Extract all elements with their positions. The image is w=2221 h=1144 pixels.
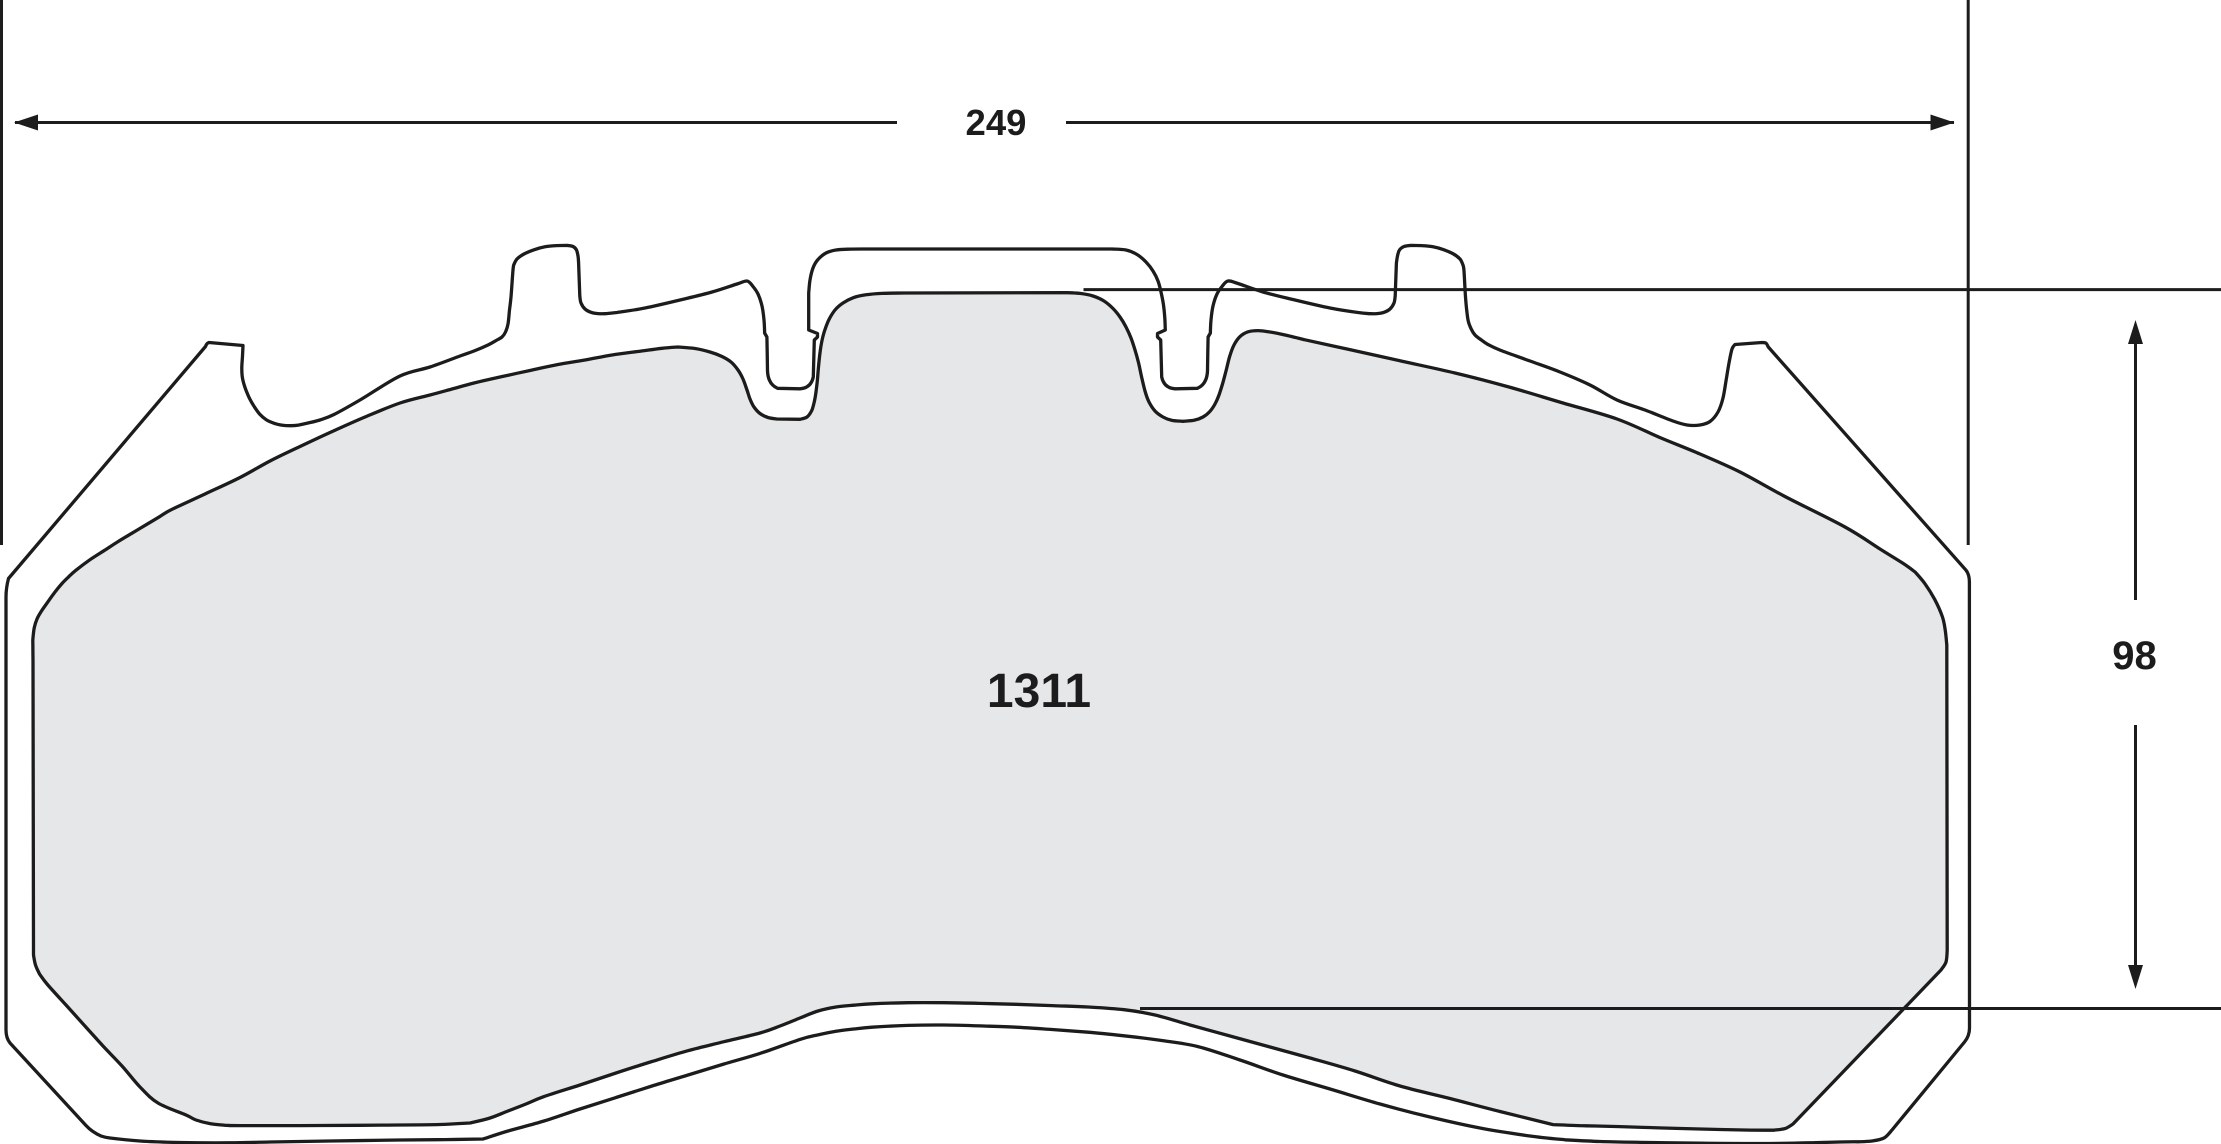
svg-text:1311: 1311: [987, 665, 1091, 718]
svg-text:249: 249: [966, 102, 1027, 143]
svg-text:98: 98: [2112, 634, 2157, 678]
